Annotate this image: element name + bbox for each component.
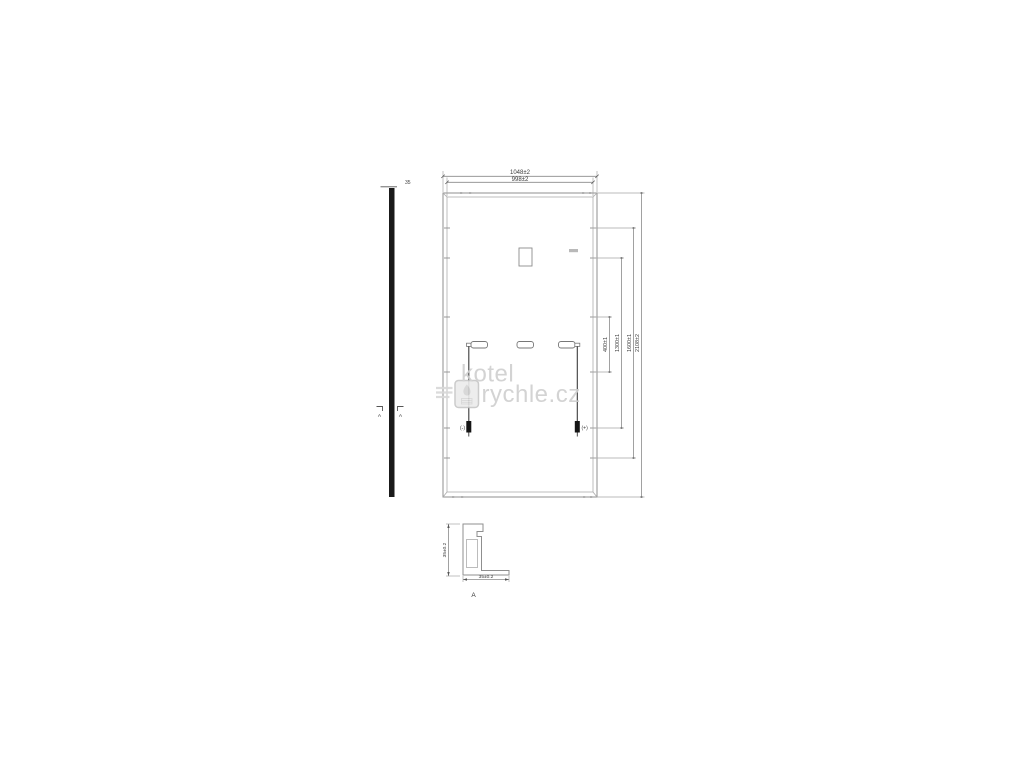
frame-profile-hollow bbox=[467, 540, 478, 568]
panel-side-profile-bar bbox=[389, 188, 395, 497]
width-dimensions: 1048±2 998±2 bbox=[441, 170, 598, 196]
junction-box-center bbox=[517, 342, 534, 349]
hamburger-lines-icon bbox=[436, 388, 453, 397]
nameplate-label bbox=[519, 248, 532, 266]
technical-drawing-page: 35 A A bbox=[0, 0, 1024, 768]
watermark-line2: rychle.cz bbox=[482, 381, 581, 408]
side-view: 35 A A bbox=[377, 180, 411, 497]
junction-box-stub-right bbox=[575, 343, 580, 346]
dim-label-holes-outer: 1600±1 bbox=[627, 334, 633, 352]
junction-boxes bbox=[467, 342, 580, 349]
junction-box-right bbox=[559, 342, 576, 349]
connector-positive-label: (+) bbox=[582, 426, 589, 432]
height-dimensions: 400±1 1300±1 1600±1 2108±2 bbox=[592, 192, 645, 498]
section-cut-bracket-left bbox=[377, 407, 383, 412]
corner-bevel-bottom-right bbox=[593, 492, 597, 497]
dim-label-holes-mid: 1300±1 bbox=[615, 334, 621, 352]
section-detail-a: 35±0.2 35±0.2 A bbox=[442, 524, 509, 599]
dim-label-holes-inner: 400±1 bbox=[603, 337, 609, 352]
section-cut-bracket-right bbox=[398, 407, 404, 412]
back-view: (-) (+) bbox=[443, 192, 597, 497]
section-letter-left: A bbox=[378, 413, 382, 419]
connector-negative-label: (-) bbox=[460, 426, 465, 432]
thickness-dim-label: 35 bbox=[405, 180, 411, 186]
dim-label-height: 2108±2 bbox=[635, 334, 641, 352]
connector-positive bbox=[575, 421, 580, 433]
dim-label-width-outer: 1048±2 bbox=[510, 170, 531, 176]
section-view-letter: A bbox=[471, 592, 476, 599]
corner-bevel-top-right bbox=[593, 193, 597, 197]
corner-bevel-top-left bbox=[443, 193, 447, 197]
solar-panel-dimension-drawing: 35 A A bbox=[0, 0, 1024, 768]
dim-label-profile-width: 35±0.2 bbox=[479, 574, 494, 580]
watermark: kotel rychle.cz bbox=[436, 361, 581, 409]
corner-bevel-bottom-left bbox=[443, 492, 447, 497]
connector-negative bbox=[466, 421, 471, 433]
dim-label-profile-height: 35±0.2 bbox=[442, 542, 448, 557]
dim-label-width-inner: 998±2 bbox=[512, 177, 529, 183]
serial-sticker bbox=[569, 249, 578, 252]
junction-box-left bbox=[471, 342, 488, 349]
section-letter-right: A bbox=[399, 413, 403, 419]
